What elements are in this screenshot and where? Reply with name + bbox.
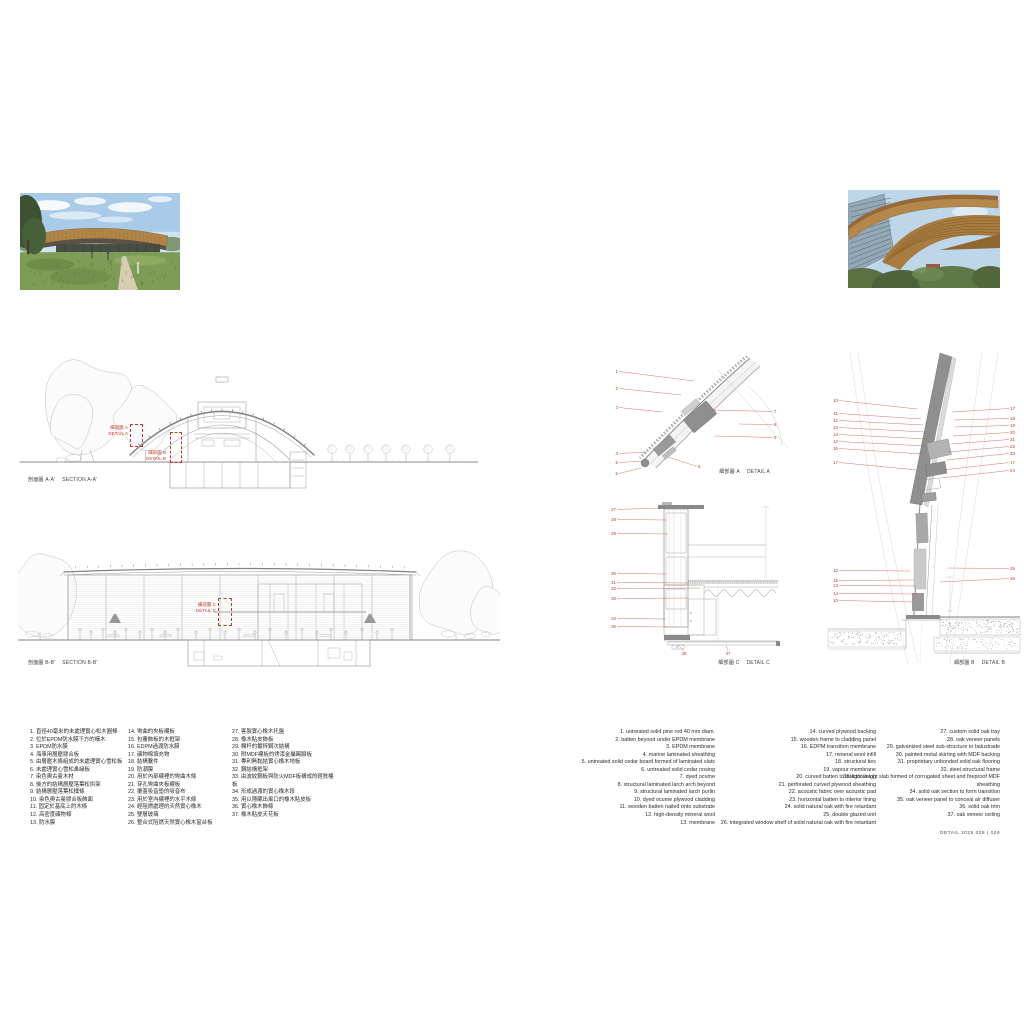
legend-item: 18. 結構繫件 bbox=[128, 759, 228, 767]
svg-text:11: 11 bbox=[833, 411, 838, 416]
svg-text:17: 17 bbox=[1010, 406, 1015, 411]
legend-item: 29. galvanized steel sub-structure to ba… bbox=[824, 744, 1000, 752]
svg-text:36: 36 bbox=[682, 651, 687, 656]
legend-item: 28. 橡木貼皮飾板 bbox=[232, 737, 336, 745]
section-aa-caption-zh: 剖面圖 A-A' bbox=[28, 477, 55, 483]
svg-text:10: 10 bbox=[833, 398, 838, 403]
svg-text:13: 13 bbox=[833, 583, 838, 588]
legend-item: 7. 染色奧古曼木材 bbox=[30, 774, 128, 782]
legend-zh-col-2: 14. 彎曲的夾板襯板15. 包覆飾板的木框架16. EDPM過渡防水膜17. … bbox=[128, 729, 228, 827]
svg-text:31: 31 bbox=[611, 580, 616, 585]
svg-text:25: 25 bbox=[1010, 566, 1015, 571]
svg-text:12: 12 bbox=[833, 439, 838, 444]
svg-text:17: 17 bbox=[833, 460, 838, 465]
detail-b-drawing: 1011121314121617171819202122231724121513… bbox=[822, 353, 1024, 668]
detail-b-marker-en: DETAIL B bbox=[122, 456, 166, 462]
legend-item: 33. lightweight slab formed of corrugate… bbox=[824, 774, 1000, 789]
legend-item: 31. proprietary unbonded solid oak floor… bbox=[824, 759, 1000, 767]
legend-item: 29. 欄杆的鍍鋅鋼次結構 bbox=[232, 744, 336, 752]
legend-item: 3. EPDM防水膜 bbox=[30, 744, 128, 752]
legend-item: 28. oak veneer panels bbox=[824, 737, 1000, 745]
legend-item: 36. solid oak trim bbox=[824, 804, 1000, 812]
svg-text:12: 12 bbox=[833, 418, 838, 423]
section-aa-drawing bbox=[18, 356, 500, 492]
section-bb-caption: 剖面圖 B-B'SECTION B-B' bbox=[28, 659, 98, 666]
svg-text:32: 32 bbox=[611, 586, 616, 591]
svg-text:3: 3 bbox=[616, 405, 619, 410]
svg-text:23: 23 bbox=[1010, 451, 1015, 456]
detail-c-marker-label: 細部圖 C DETAIL C bbox=[172, 602, 216, 614]
legend-item: 31. 專利無黏結實心橡木地板 bbox=[232, 759, 336, 767]
legend-item: 32. steel structural frame bbox=[824, 767, 1000, 775]
legend-item: 13. 防水膜 bbox=[30, 820, 128, 828]
legend-item: 37. oak veneer ceiling bbox=[824, 812, 1000, 820]
legend-item: 35. oak veneer panel to conceal air diff… bbox=[824, 797, 1000, 805]
svg-text:30: 30 bbox=[611, 571, 616, 576]
book-spread-page: 1234565789 bbox=[0, 0, 1024, 1024]
detail-c-caption-zh: 細部圖 C bbox=[718, 660, 739, 666]
legend-item: 11. 固定於基底上的木條 bbox=[30, 804, 128, 812]
detail-b-caption-zh: 細部圖 B bbox=[954, 660, 975, 666]
legend-item: 22. 覆蓋吸音墊的吸音布 bbox=[128, 789, 228, 797]
legend-item: 9. 結構層壓落葉松檁條 bbox=[30, 789, 128, 797]
svg-text:35: 35 bbox=[611, 624, 616, 629]
svg-text:1: 1 bbox=[616, 369, 619, 374]
detail-a-caption: 細部圖 ADETAIL A bbox=[680, 468, 770, 475]
svg-text:14: 14 bbox=[833, 591, 838, 596]
section-bb-caption-en: SECTION B-B' bbox=[62, 660, 97, 666]
legend-zh-col-1: 1. 直徑40毫米的未處理實心松木圓棒2. 位於EPDM防水膜下方的橫木3. E… bbox=[30, 729, 128, 827]
detail-c-caption-en: DETAIL C bbox=[746, 660, 770, 666]
svg-text:19: 19 bbox=[1010, 423, 1015, 428]
svg-text:10: 10 bbox=[833, 598, 838, 603]
detail-a-marker-label: 細部圖 A DETAIL A bbox=[84, 425, 128, 437]
detail-b-caption: 細部圖 BDETAIL B bbox=[915, 659, 1005, 666]
svg-text:16: 16 bbox=[833, 446, 838, 451]
svg-text:6: 6 bbox=[616, 471, 619, 476]
legend-item: 34. solid oak section to form transition bbox=[824, 789, 1000, 797]
svg-text:20: 20 bbox=[1010, 430, 1015, 435]
detail-a-drawing: 1234565789 bbox=[598, 356, 798, 478]
section-aa-caption-en: SECTION A-A' bbox=[62, 477, 97, 483]
section-bb-caption-zh: 剖面圖 B-B' bbox=[28, 660, 55, 666]
svg-text:2: 2 bbox=[616, 386, 619, 391]
exterior-photo bbox=[20, 193, 180, 290]
legend-item: 25. 雙層玻璃 bbox=[128, 812, 228, 820]
legend-en-col-3: 27. custom solid oak tray28. oak veneer … bbox=[824, 729, 1000, 820]
detail-b-marker-label: 細部圖 B DETAIL B bbox=[122, 450, 166, 462]
legend-item: 36. 實心橡木飾條 bbox=[232, 804, 336, 812]
svg-text:22: 22 bbox=[1010, 444, 1015, 449]
detail-c-drawing: 2728293031323334353637 bbox=[598, 495, 798, 665]
legend-item: 34. 形成過渡的實心橡木段 bbox=[232, 789, 336, 797]
detail-a-marker-en: DETAIL A bbox=[84, 431, 128, 437]
legend-item: 27. custom solid oak tray bbox=[824, 729, 1000, 737]
legend-zh-col-3: 27. 客製實心橡木托盤28. 橡木貼皮飾板29. 欄杆的鍍鋅鋼次結構30. 附… bbox=[232, 729, 336, 820]
legend-item: 5. 由層壓木條組成的未處理實心雪松板 bbox=[30, 759, 128, 767]
legend-item: 14. 彎曲的夾板襯板 bbox=[128, 729, 228, 737]
legend-item: 27. 客製實心橡木托盤 bbox=[232, 729, 336, 737]
section-aa-caption: 剖面圖 A-A'SECTION A-A' bbox=[28, 476, 97, 483]
detail-a-marker-box bbox=[130, 424, 143, 447]
svg-text:28: 28 bbox=[611, 517, 616, 522]
svg-text:5: 5 bbox=[616, 460, 619, 465]
detail-c-marker-en: DETAIL C bbox=[172, 608, 216, 614]
page-footer: DETAIL 2025 028 | 029 bbox=[940, 831, 1000, 836]
svg-text:33: 33 bbox=[611, 596, 616, 601]
legend-item: 24. 經阻燃處理的天然實心橡木 bbox=[128, 804, 228, 812]
svg-text:37: 37 bbox=[726, 651, 731, 656]
svg-text:34: 34 bbox=[611, 616, 616, 621]
svg-text:24: 24 bbox=[1010, 468, 1015, 473]
svg-text:27: 27 bbox=[611, 507, 616, 512]
legend-item: 26. 整合式阻燃天然實心橡木窗台板 bbox=[128, 820, 228, 828]
detail-a-caption-en: DETAIL A bbox=[747, 469, 770, 475]
svg-text:26: 26 bbox=[1010, 576, 1015, 581]
detail-b-marker-box bbox=[170, 432, 182, 463]
legend-item: 16. EDPM過渡防水膜 bbox=[128, 744, 228, 752]
legend-item: 33. 由波紋鋼板與防火MDF板構成的輕質樓板 bbox=[232, 774, 336, 789]
svg-text:4: 4 bbox=[616, 451, 619, 456]
svg-text:13: 13 bbox=[833, 425, 838, 430]
svg-text:9: 9 bbox=[774, 435, 777, 440]
legend-item: 1. 直徑40毫米的未處理實心松木圓棒 bbox=[30, 729, 128, 737]
detail-b-caption-en: DETAIL B bbox=[982, 660, 1005, 666]
svg-text:14: 14 bbox=[833, 432, 838, 437]
section-bb-drawing bbox=[18, 528, 500, 676]
legend-item: 20. 用於內部襯裡的彎曲木條 bbox=[128, 774, 228, 782]
legend-item: 37. 橡木貼皮天花板 bbox=[232, 812, 336, 820]
svg-text:18: 18 bbox=[1010, 416, 1015, 421]
svg-text:29: 29 bbox=[611, 531, 616, 536]
detail-c-marker-box bbox=[218, 598, 232, 626]
legend-item: 2. 位於EPDM防水膜下方的橫木 bbox=[30, 737, 128, 745]
legend-item: 26. integrated window shelf of solid nat… bbox=[686, 820, 876, 828]
svg-text:7: 7 bbox=[774, 409, 777, 414]
legend-item: 30. painted metal skirting with MDF back… bbox=[824, 752, 1000, 760]
legend-item: 15. 包覆飾板的木框架 bbox=[128, 737, 228, 745]
detail-a-caption-zh: 細部圖 A bbox=[719, 469, 740, 475]
roof-closeup-photo bbox=[848, 190, 1000, 288]
detail-c-caption: 細部圖 CDETAIL C bbox=[680, 659, 770, 666]
svg-text:12: 12 bbox=[833, 568, 838, 573]
svg-text:21: 21 bbox=[1010, 437, 1015, 442]
legend-item: 12. 高密度礦物棉 bbox=[30, 812, 128, 820]
svg-text:17: 17 bbox=[1010, 460, 1015, 465]
